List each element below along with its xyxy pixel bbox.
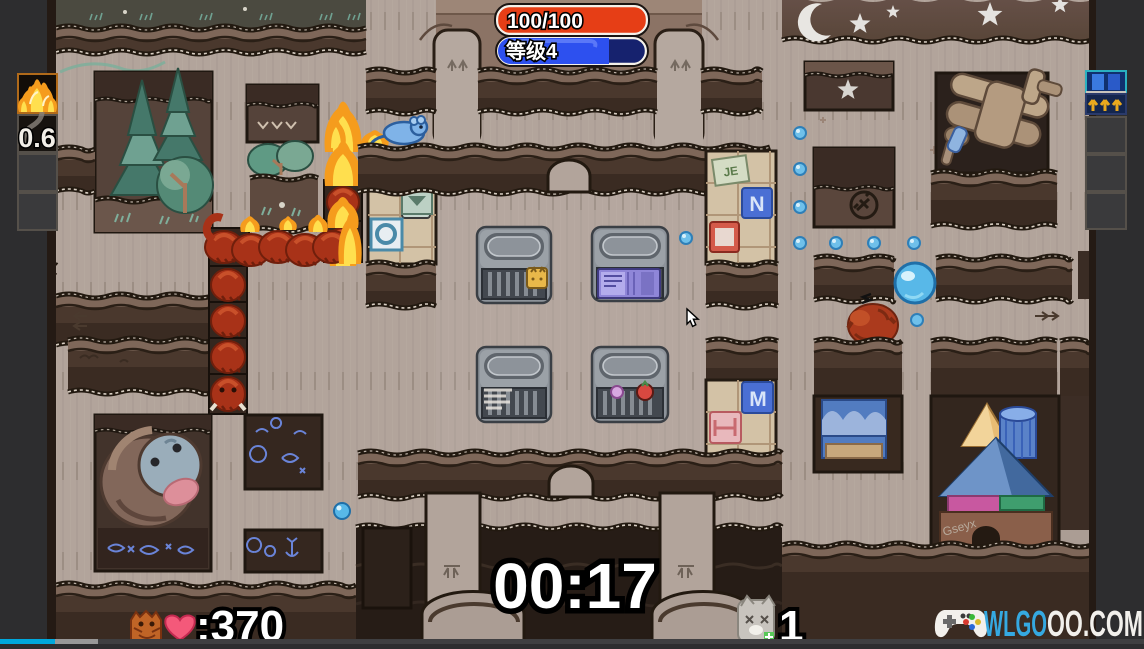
- svg-text:N: N: [749, 193, 764, 216]
- svg-text:等级4: 等级4: [506, 39, 558, 63]
- svg-text::370: :370: [196, 602, 284, 644]
- svg-text:0.6: 0.6: [18, 123, 56, 153]
- svg-text:M: M: [749, 388, 767, 411]
- svg-text:1: 1: [779, 602, 803, 644]
- svg-text:JE: JE: [723, 164, 739, 180]
- svg-text:100/100: 100/100: [507, 10, 583, 33]
- svg-text:WLGOOO.COM: WLGOOO.COM: [984, 603, 1143, 644]
- svg-text:00:17: 00:17: [493, 550, 657, 622]
